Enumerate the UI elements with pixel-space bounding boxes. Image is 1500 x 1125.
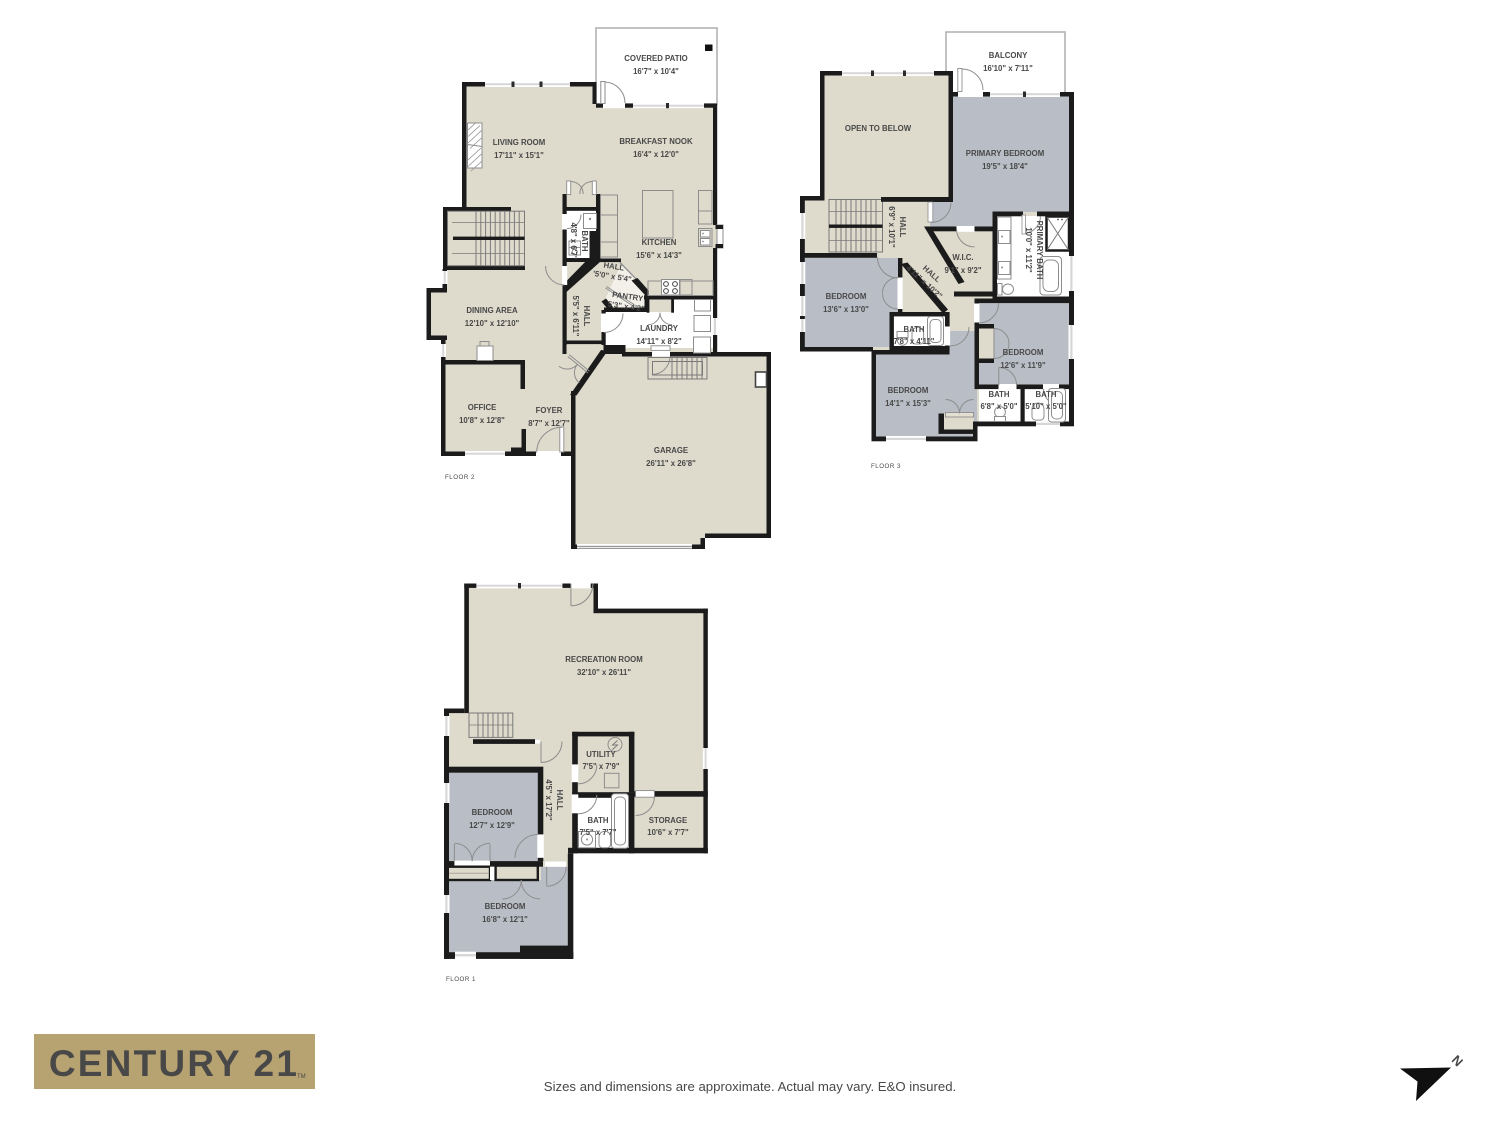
svg-text:16'7" x 10'4": 16'7" x 10'4" bbox=[633, 67, 679, 76]
svg-text:HALL: HALL bbox=[555, 790, 564, 811]
svg-text:BEDROOM: BEDROOM bbox=[826, 292, 867, 301]
svg-text:9'1" x 9'2": 9'1" x 9'2" bbox=[944, 266, 981, 275]
svg-text:14'11" x 8'2": 14'11" x 8'2" bbox=[636, 337, 682, 346]
svg-text:CENTURY 21: CENTURY 21 bbox=[49, 1043, 299, 1084]
svg-text:7'8" x 4'11": 7'8" x 4'11" bbox=[893, 337, 934, 346]
svg-text:TM: TM bbox=[297, 1074, 306, 1080]
svg-text:16'10" x 7'11": 16'10" x 7'11" bbox=[983, 64, 1033, 73]
svg-text:BATH: BATH bbox=[1035, 390, 1056, 399]
svg-text:7'5" x 7'9": 7'5" x 7'9" bbox=[582, 762, 619, 771]
svg-text:15'6" x 14'3": 15'6" x 14'3" bbox=[636, 251, 682, 260]
svg-text:BEDROOM: BEDROOM bbox=[472, 808, 513, 817]
svg-text:6'8" x 5'0": 6'8" x 5'0" bbox=[980, 402, 1017, 411]
svg-text:FOYER: FOYER bbox=[536, 406, 563, 415]
svg-text:PRIMARY BATH: PRIMARY BATH bbox=[1035, 221, 1044, 280]
svg-text:UTILITY: UTILITY bbox=[586, 750, 616, 759]
svg-text:14'1" x 15'3": 14'1" x 15'3" bbox=[885, 399, 931, 408]
svg-text:17'11" x 15'1": 17'11" x 15'1" bbox=[494, 151, 544, 160]
svg-text:FLOOR 1: FLOOR 1 bbox=[446, 976, 476, 983]
svg-text:BATH: BATH bbox=[988, 390, 1009, 399]
svg-text:HALL: HALL bbox=[582, 306, 591, 327]
svg-text:HALL: HALL bbox=[898, 217, 907, 238]
svg-text:19'5" x 18'4": 19'5" x 18'4" bbox=[982, 162, 1028, 171]
svg-text:4'8" x 6'7": 4'8" x 6'7" bbox=[569, 222, 578, 259]
svg-text:10'6" x 7'7": 10'6" x 7'7" bbox=[647, 828, 689, 837]
svg-text:LIVING ROOM: LIVING ROOM bbox=[493, 138, 545, 147]
svg-text:DINING AREA: DINING AREA bbox=[466, 306, 518, 315]
svg-text:BATH: BATH bbox=[580, 230, 589, 251]
svg-text:26'11" x 26'8": 26'11" x 26'8" bbox=[646, 459, 696, 468]
svg-text:LAUNDRY: LAUNDRY bbox=[640, 324, 679, 333]
svg-text:7'5" x 7'7": 7'5" x 7'7" bbox=[579, 828, 616, 837]
svg-text:BALCONY: BALCONY bbox=[989, 51, 1028, 60]
svg-text:BATH: BATH bbox=[903, 325, 924, 334]
svg-text:10'0" x 11'2": 10'0" x 11'2" bbox=[1024, 227, 1033, 273]
svg-text:12'10" x 12'10": 12'10" x 12'10" bbox=[465, 319, 520, 328]
svg-text:13'6" x 13'0": 13'6" x 13'0" bbox=[823, 305, 869, 314]
svg-text:FLOOR 3: FLOOR 3 bbox=[871, 463, 901, 470]
svg-text:GARAGE: GARAGE bbox=[654, 446, 688, 455]
svg-text:5'5" x 6'11": 5'5" x 6'11" bbox=[571, 295, 580, 336]
svg-text:12'6" x 11'9": 12'6" x 11'9" bbox=[1000, 361, 1046, 370]
svg-text:W.I.C.: W.I.C. bbox=[952, 253, 973, 262]
svg-text:6'9" x 10'1": 6'9" x 10'1" bbox=[887, 206, 896, 248]
svg-text:PRIMARY BEDROOM: PRIMARY BEDROOM bbox=[966, 149, 1044, 158]
svg-text:STORAGE: STORAGE bbox=[649, 816, 687, 825]
svg-text:FLOOR 2: FLOOR 2 bbox=[445, 474, 475, 481]
svg-text:COVERED PATIO: COVERED PATIO bbox=[624, 54, 687, 63]
svg-text:OFFICE: OFFICE bbox=[468, 403, 497, 412]
svg-text:16'8" x 12'1": 16'8" x 12'1" bbox=[482, 915, 528, 924]
svg-text:8'7" x 12'7": 8'7" x 12'7" bbox=[528, 419, 570, 428]
svg-text:KITCHEN: KITCHEN bbox=[642, 238, 677, 247]
svg-text:5'10" x 5'0": 5'10" x 5'0" bbox=[1025, 402, 1067, 411]
svg-text:BEDROOM: BEDROOM bbox=[888, 386, 929, 395]
svg-text:BATH: BATH bbox=[587, 816, 608, 825]
svg-text:OPEN TO BELOW: OPEN TO BELOW bbox=[845, 124, 912, 133]
svg-text:32'10" x 26'11": 32'10" x 26'11" bbox=[577, 668, 631, 677]
svg-text:4'5" x 17'2": 4'5" x 17'2" bbox=[544, 779, 553, 821]
svg-text:BREAKFAST NOOK: BREAKFAST NOOK bbox=[619, 137, 693, 146]
svg-text:10'8" x 12'8": 10'8" x 12'8" bbox=[459, 416, 505, 425]
svg-text:16'4" x 12'0": 16'4" x 12'0" bbox=[633, 150, 679, 159]
svg-text:BEDROOM: BEDROOM bbox=[1003, 348, 1044, 357]
svg-text:12'7" x 12'9": 12'7" x 12'9" bbox=[469, 821, 515, 830]
svg-text:RECREATION ROOM: RECREATION ROOM bbox=[565, 655, 642, 664]
svg-text:Sizes and dimensions are appro: Sizes and dimensions are approximate. Ac… bbox=[544, 1079, 956, 1094]
svg-text:BEDROOM: BEDROOM bbox=[485, 902, 526, 911]
